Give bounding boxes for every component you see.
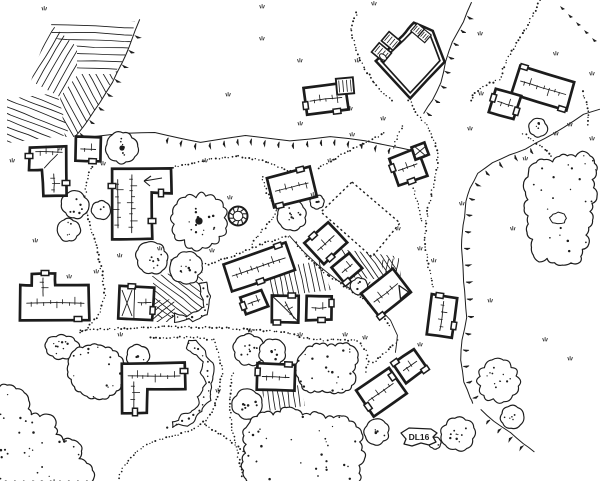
- svg-text:DL16: DL16: [409, 432, 430, 442]
